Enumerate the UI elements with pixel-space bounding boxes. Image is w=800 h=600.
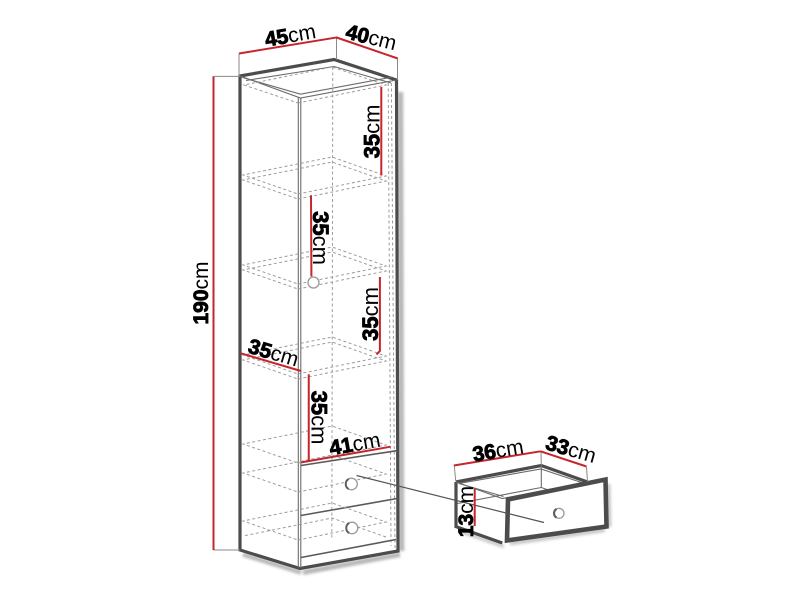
svg-text:35cm: 35cm bbox=[308, 211, 333, 265]
svg-text:35cm: 35cm bbox=[358, 287, 383, 341]
svg-text:13cm: 13cm bbox=[455, 486, 478, 537]
svg-text:35cm: 35cm bbox=[360, 105, 385, 159]
svg-text:35cm: 35cm bbox=[307, 391, 332, 445]
svg-text:190cm: 190cm bbox=[190, 261, 213, 324]
